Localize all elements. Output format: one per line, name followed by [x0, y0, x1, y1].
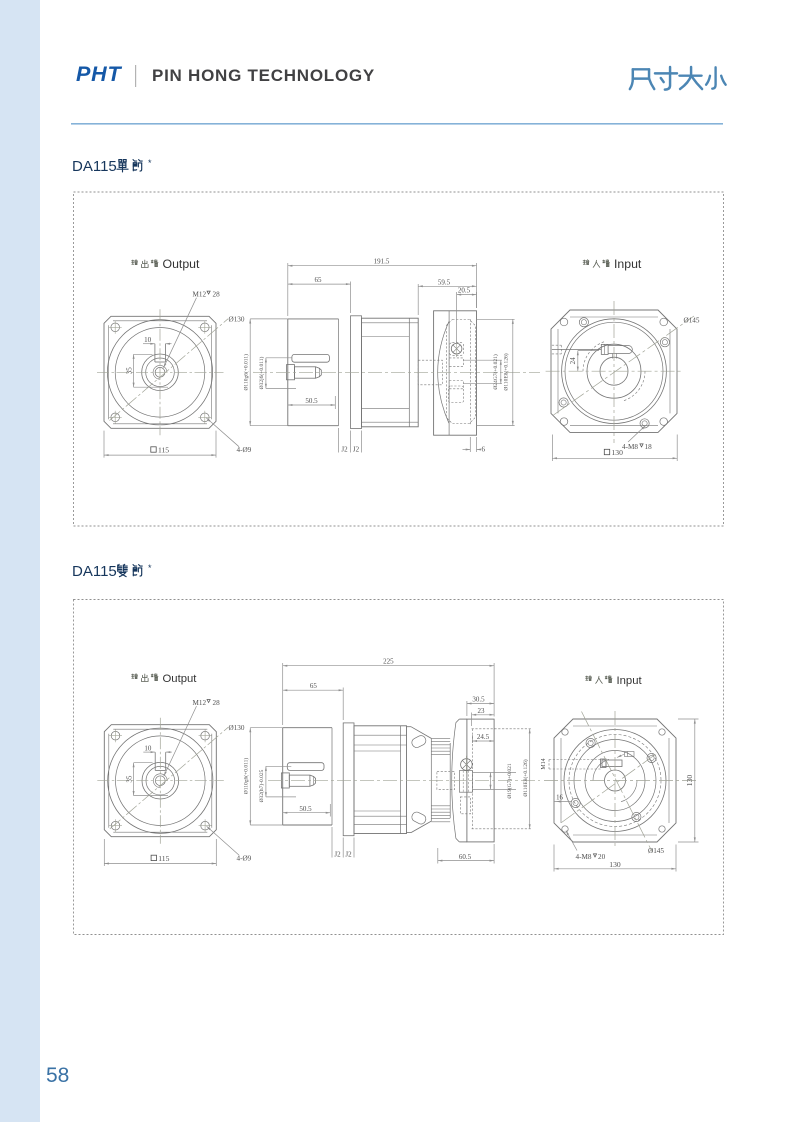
svg-text:PHT: PHT: [76, 62, 122, 86]
svg-text:65: 65: [310, 682, 318, 690]
svg-text:10: 10: [144, 745, 152, 753]
svg-text:28: 28: [213, 699, 221, 707]
svg-text:DA115: DA115: [72, 563, 117, 580]
svg-text:*: *: [148, 158, 152, 168]
svg-text:130: 130: [612, 448, 624, 457]
svg-text:Ø130: Ø130: [229, 316, 245, 324]
svg-text:Ø110g6(+0.011): Ø110g6(+0.011): [242, 354, 249, 391]
svg-text:Output: Output: [163, 257, 200, 271]
svg-text:30.5: 30.5: [472, 696, 485, 704]
svg-text:24.5: 24.5: [477, 733, 490, 741]
svg-text:M12: M12: [193, 699, 207, 707]
svg-text:23: 23: [478, 707, 486, 715]
svg-text:20.5: 20.5: [458, 287, 471, 295]
svg-text:Ø130: Ø130: [229, 724, 245, 732]
svg-text:115: 115: [158, 446, 169, 455]
svg-text:4-Ø9: 4-Ø9: [237, 855, 252, 863]
svg-text:35: 35: [126, 775, 134, 783]
svg-text:35: 35: [126, 367, 134, 375]
svg-text:Input: Input: [617, 675, 643, 687]
svg-text:60.5: 60.5: [459, 853, 472, 861]
svg-text:16: 16: [556, 794, 563, 801]
svg-text:Ø110E8(+0.126): Ø110E8(+0.126): [503, 353, 510, 390]
svg-text:130: 130: [609, 860, 621, 869]
svg-text:Ø32j6(+0.011): Ø32j6(+0.011): [258, 356, 265, 389]
svg-text:M14: M14: [541, 758, 547, 769]
svg-text:Ø110E8(+0.126): Ø110E8(+0.126): [522, 759, 529, 796]
svg-text:50.5: 50.5: [299, 805, 312, 813]
svg-text:Input: Input: [614, 257, 642, 271]
svg-text:Ø110g6(+0.011): Ø110g6(+0.011): [242, 758, 249, 795]
svg-text:M12: M12: [193, 290, 207, 298]
svg-text:Ø145: Ø145: [648, 847, 664, 855]
svg-text:4-M8: 4-M8: [576, 853, 592, 861]
svg-text:130: 130: [685, 775, 694, 787]
svg-text:115: 115: [158, 854, 169, 863]
svg-text:225: 225: [383, 658, 394, 666]
svg-text:Ø32(h7)-0.025: Ø32(h7)-0.025: [258, 769, 265, 802]
svg-text:28: 28: [213, 290, 221, 298]
svg-text:Ø19(G7)+0.021: Ø19(G7)+0.021: [506, 763, 513, 799]
svg-text:10: 10: [144, 336, 152, 344]
svg-text:J2: J2: [341, 446, 348, 454]
svg-text:18: 18: [645, 443, 653, 451]
svg-text:58: 58: [46, 1064, 69, 1087]
svg-text:4-Ø9: 4-Ø9: [237, 446, 252, 454]
svg-text:59.5: 59.5: [438, 278, 451, 286]
svg-text:J2: J2: [353, 446, 360, 454]
svg-text:Ø24G7(+0.021): Ø24G7(+0.021): [492, 354, 499, 390]
svg-text:Ø145: Ø145: [684, 317, 700, 325]
svg-text:4-M8: 4-M8: [622, 443, 638, 451]
svg-text:65: 65: [315, 276, 323, 284]
svg-text:J2: J2: [334, 851, 341, 859]
svg-text:6: 6: [482, 446, 486, 454]
svg-text:24: 24: [569, 357, 577, 365]
svg-text:DA115: DA115: [72, 158, 117, 175]
svg-text:20: 20: [598, 853, 606, 861]
svg-text:PIN HONG TECHNOLOGY: PIN HONG TECHNOLOGY: [152, 66, 375, 85]
svg-text:191.5: 191.5: [374, 258, 390, 266]
svg-text:Output: Output: [163, 673, 198, 685]
svg-text:*: *: [148, 563, 152, 573]
svg-text:J2: J2: [345, 851, 352, 859]
svg-text:50.5: 50.5: [305, 397, 318, 405]
